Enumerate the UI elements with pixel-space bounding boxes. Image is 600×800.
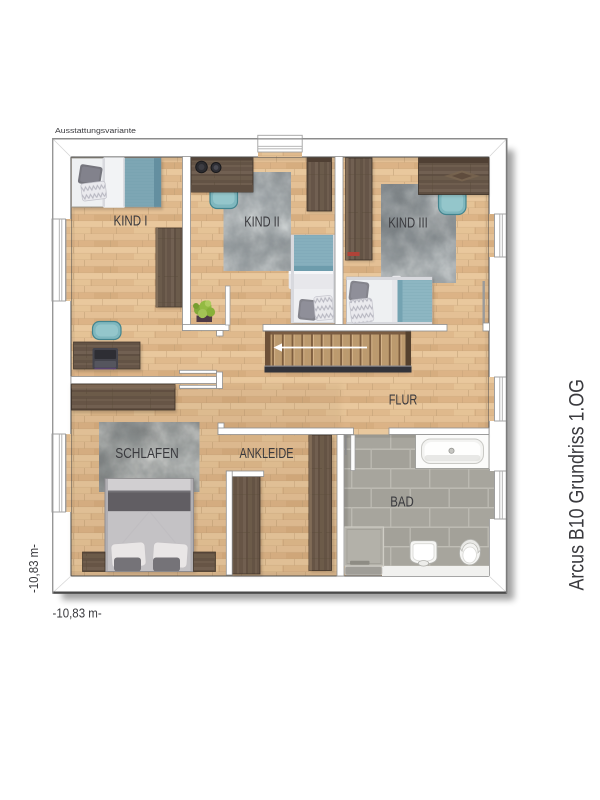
svg-text:ANKLEIDE: ANKLEIDE	[240, 445, 294, 462]
svg-text:KIND II: KIND II	[244, 214, 280, 230]
svg-text:SCHLAFEN: SCHLAFEN	[115, 445, 179, 462]
svg-text:-10,83 m-: -10,83 m-	[26, 544, 41, 593]
svg-text:BAD: BAD	[390, 494, 414, 511]
svg-text:Arcus B10 Grundriss 1.OG: Arcus B10 Grundriss 1.OG	[566, 379, 589, 591]
svg-text:KIND I: KIND I	[114, 213, 148, 229]
svg-text:FLUR: FLUR	[389, 392, 418, 408]
svg-text:-10,83 m-: -10,83 m-	[53, 606, 102, 621]
svg-text:Ausstattungsvariante: Ausstattungsvariante	[55, 128, 136, 135]
svg-text:KIND III: KIND III	[388, 216, 428, 232]
